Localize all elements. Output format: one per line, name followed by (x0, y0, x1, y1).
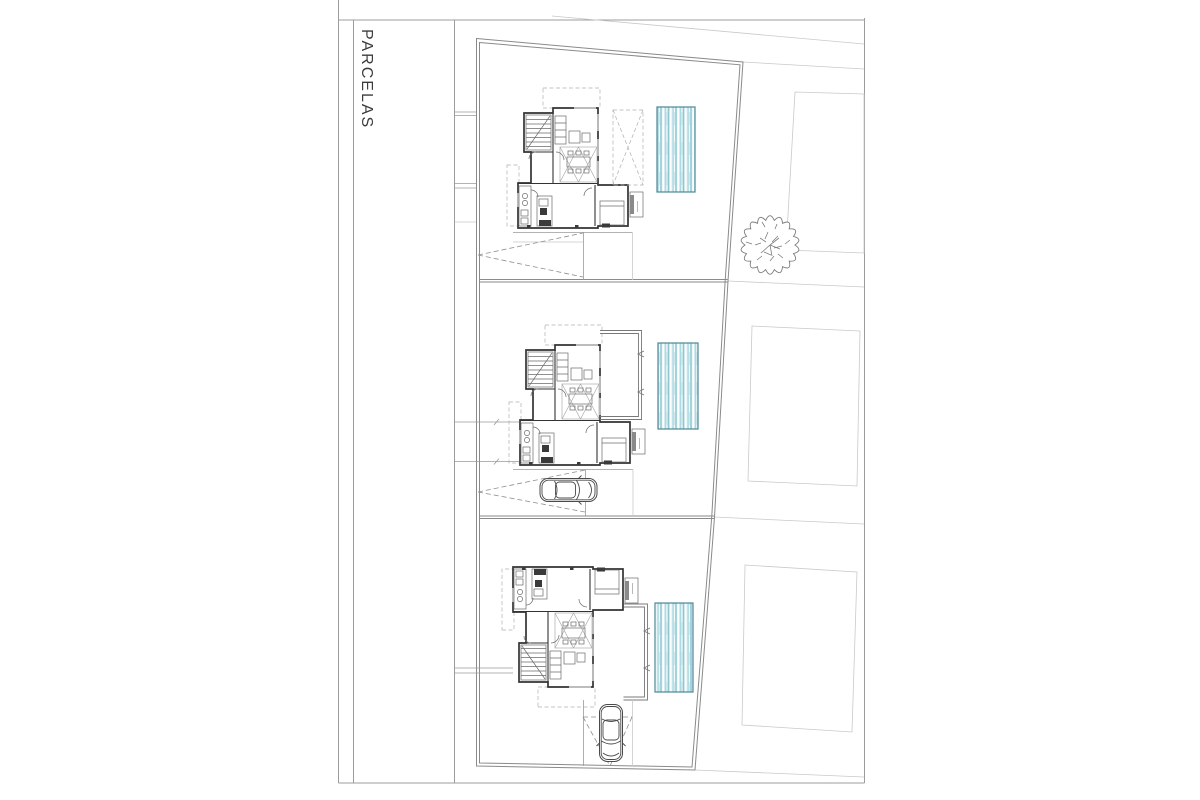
neighbor-plot-1 (786, 92, 864, 253)
sheet-frame (339, 0, 865, 783)
tree-icon (741, 216, 799, 275)
parcel-1 (478, 88, 695, 280)
site-boundary (477, 39, 744, 771)
parcel-3 (502, 567, 693, 767)
neighbor-plot-3 (742, 565, 857, 732)
parcel-divider-2 (480, 516, 715, 519)
terrace-2 (600, 331, 644, 604)
car-icon-2 (597, 705, 626, 762)
driveway-1 (478, 232, 633, 280)
sight-triangle-1 (478, 233, 583, 277)
parcel-divider-1 (480, 280, 728, 283)
terrace-3 (624, 604, 651, 700)
parcel-2 (478, 325, 698, 603)
access-lines (455, 112, 520, 673)
house-plan-1 (507, 88, 643, 229)
carport-dashed-1 (613, 110, 643, 185)
house-plan-3 (502, 567, 638, 708)
pool-3 (655, 603, 693, 692)
house-plan-2 (509, 325, 645, 466)
neighbor-plot-2 (748, 326, 860, 486)
site-plan-drawing (0, 0, 1200, 800)
drawing-sheet: PARCELAS (0, 0, 1200, 800)
pool-1 (657, 107, 695, 192)
car-icon-1 (540, 476, 597, 505)
pool-2 (658, 343, 698, 429)
neighbor-plots (742, 92, 864, 732)
